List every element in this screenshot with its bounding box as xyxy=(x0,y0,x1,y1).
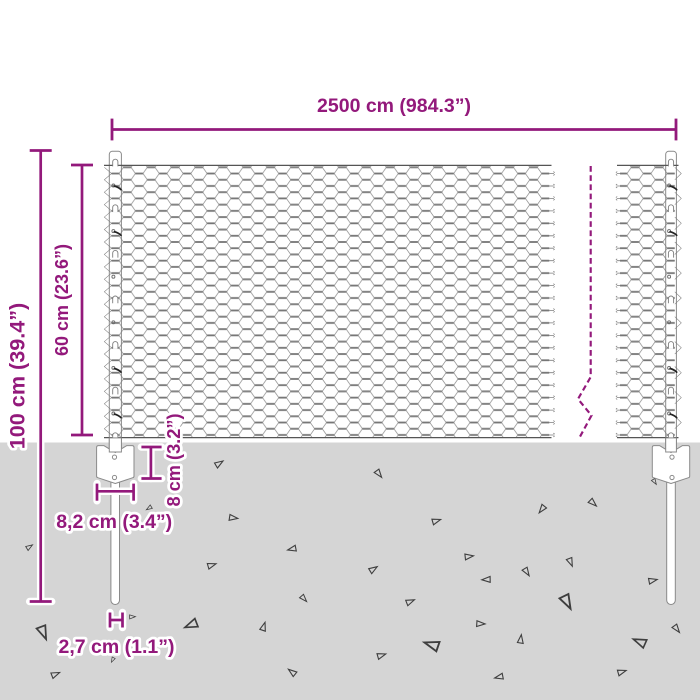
svg-text:8,2 cm (3.4”): 8,2 cm (3.4”) xyxy=(56,511,172,533)
svg-text:2,7 cm (1.1”): 2,7 cm (1.1”) xyxy=(59,636,175,658)
svg-text:2500 cm (984.3”): 2500 cm (984.3”) xyxy=(317,95,471,117)
svg-text:100 cm (39.4”): 100 cm (39.4”) xyxy=(5,303,30,449)
svg-text:60 cm (23.6”): 60 cm (23.6”) xyxy=(52,244,72,356)
svg-text:8 cm (3.2”): 8 cm (3.2”) xyxy=(164,414,184,507)
